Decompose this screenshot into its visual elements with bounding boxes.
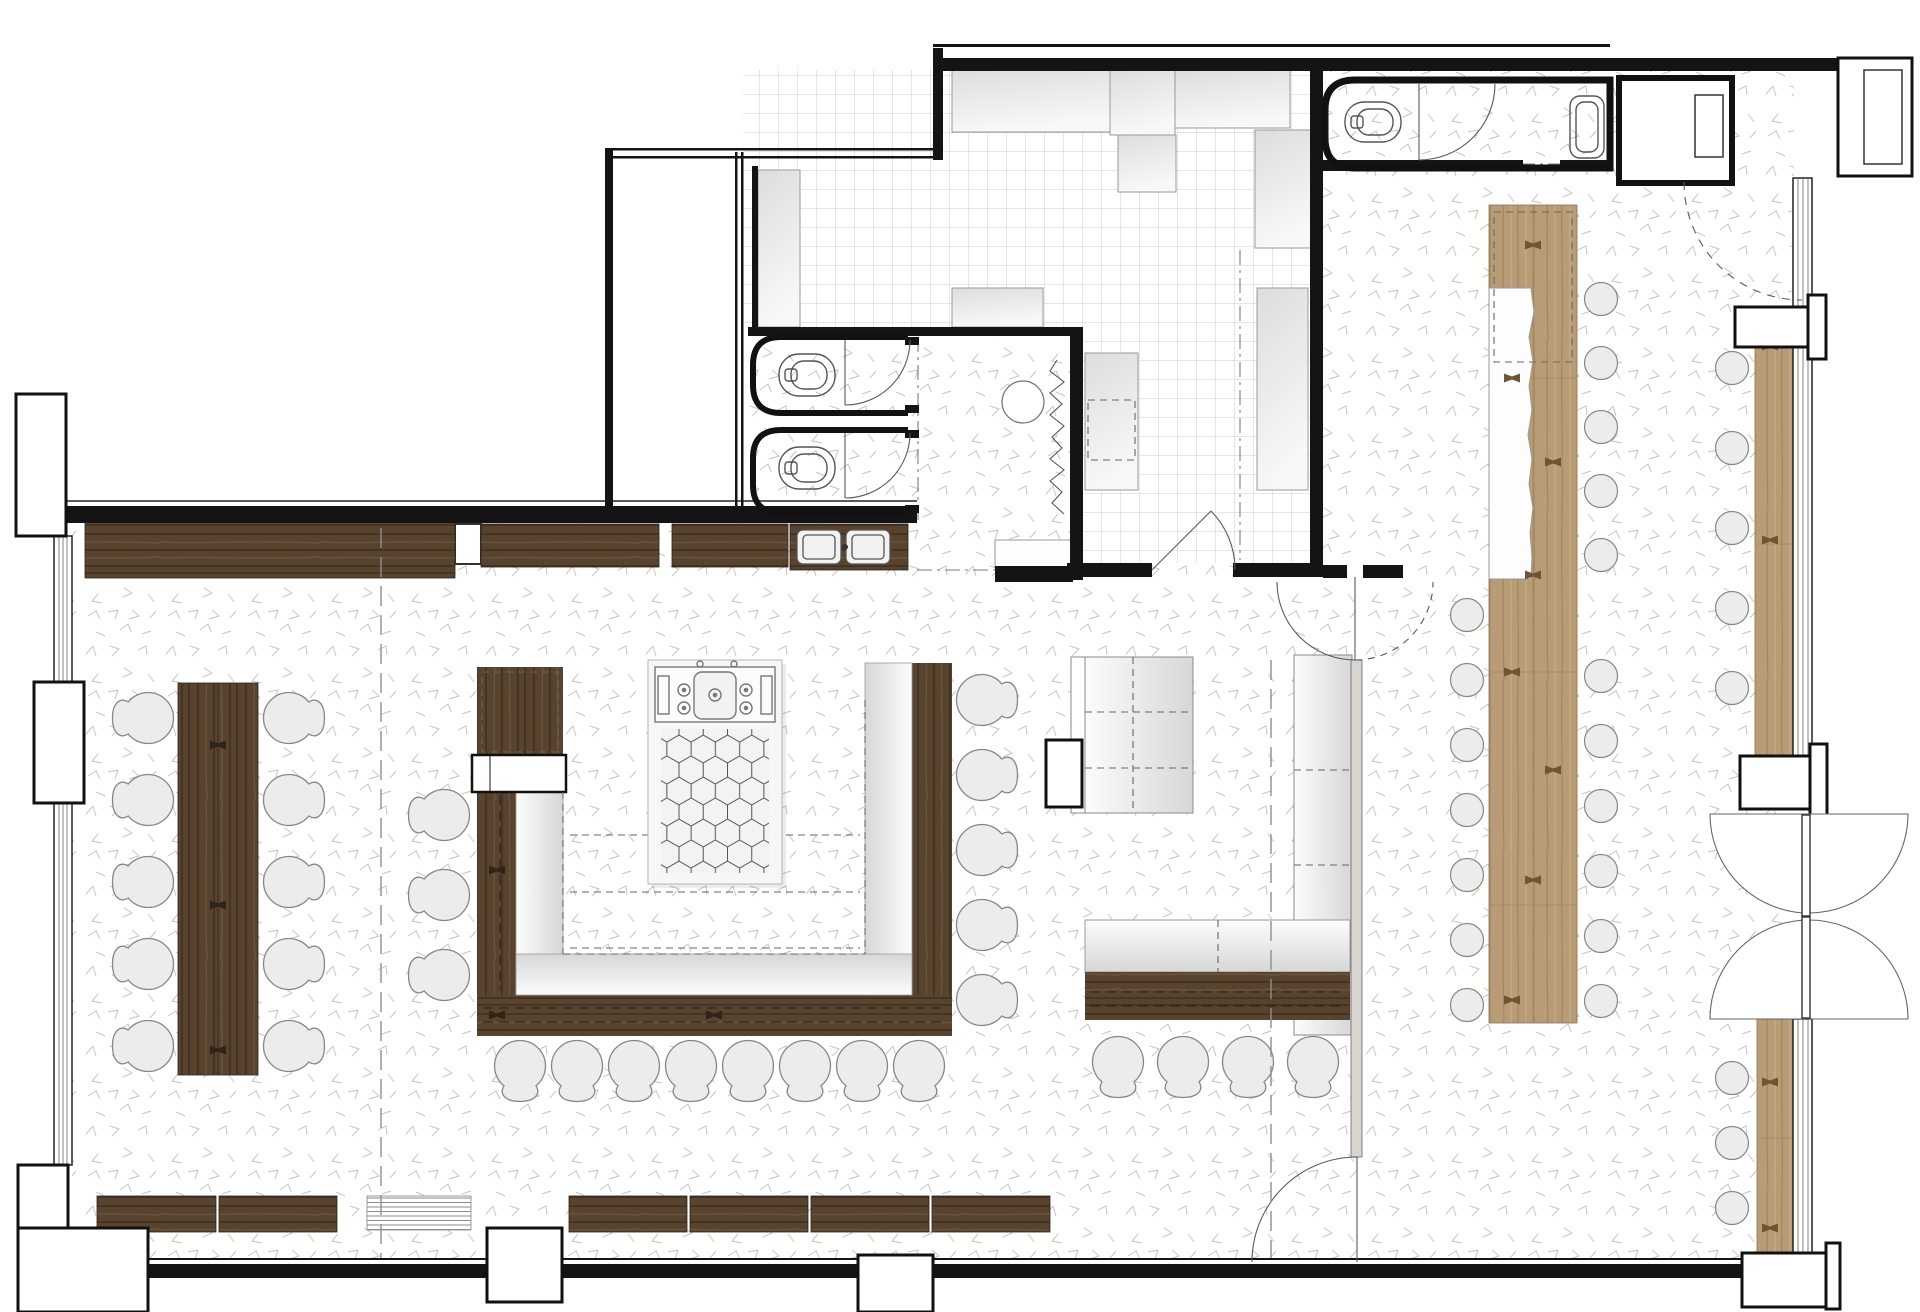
stool-window-bench-upper	[1716, 512, 1749, 545]
stool-window-bench-upper	[1716, 352, 1749, 385]
pass-shelf	[995, 540, 1073, 568]
stool-bar-west	[1451, 859, 1484, 892]
chair-left-table-east	[264, 1021, 325, 1072]
southeast-corner-pier	[1826, 1243, 1840, 1309]
u-cushion-east	[865, 663, 912, 995]
grill-appliance	[655, 661, 775, 722]
counter	[1257, 288, 1308, 490]
service-cabinet	[455, 524, 481, 564]
chair-u-booth-south	[609, 1041, 660, 1102]
stool-window-bench-lower	[1716, 1062, 1749, 1095]
chair-u-booth-west	[409, 950, 470, 1001]
entrance-mat	[367, 1196, 471, 1230]
stool-bar-west	[1451, 989, 1484, 1022]
lounge-bench-wood	[1085, 972, 1350, 1020]
communal-table	[178, 683, 258, 1075]
south-wall-benches	[97, 1196, 1050, 1232]
chair-u-booth-south	[666, 1041, 717, 1102]
chair-u-booth-east	[957, 675, 1018, 726]
stool-bar-east	[1585, 790, 1618, 823]
stool-window-bench-upper	[1716, 592, 1749, 625]
stool-bar-west	[1451, 794, 1484, 827]
chair-lounge-bench-south	[1288, 1037, 1339, 1098]
stool-window-bench-lower	[1716, 1127, 1749, 1160]
stool-bar-east	[1585, 347, 1618, 380]
chair-left-table-west	[113, 939, 174, 990]
stool-bar-east	[1585, 725, 1618, 758]
chair-u-booth-west	[409, 870, 470, 921]
east-pier-cap	[1810, 744, 1827, 821]
wall-bench	[690, 1196, 808, 1232]
stool-bar-east	[1585, 283, 1618, 316]
floor-plan-canvas	[0, 0, 1920, 1312]
counter	[1085, 353, 1138, 490]
southeast-corner-pier	[1742, 1253, 1826, 1307]
floor-plan-page	[0, 0, 1920, 1312]
chair-u-booth-south	[495, 1041, 546, 1102]
chair-left-table-east	[264, 939, 325, 990]
southwest-corner-pier	[18, 1228, 148, 1312]
accessible-wc-floor	[1325, 80, 1610, 168]
faucet-dot	[842, 544, 848, 550]
wall-bench	[219, 1196, 337, 1232]
stool-bar-west	[1451, 599, 1484, 632]
wall-bench	[569, 1196, 687, 1232]
hall-prep-wall	[1070, 335, 1083, 580]
stool-bar-east	[1585, 475, 1618, 508]
sofa-a-seat	[1085, 657, 1193, 813]
step-wall	[605, 150, 613, 510]
side-table	[1046, 740, 1082, 807]
north-wall	[933, 58, 1838, 71]
chair-u-booth-east	[957, 900, 1018, 951]
west-pillar	[16, 394, 66, 536]
stool-bar-east	[1585, 985, 1618, 1018]
counter	[1110, 70, 1175, 135]
grill-island	[648, 660, 786, 888]
chair-u-booth-south	[723, 1041, 774, 1102]
chair-u-booth-south	[894, 1041, 945, 1102]
u-booth-arm-west	[477, 667, 516, 1036]
lounge-partition	[1351, 660, 1362, 1157]
chair-u-booth-east	[957, 825, 1018, 876]
stool-bar-west	[1451, 729, 1484, 762]
counter	[1175, 70, 1290, 128]
south-pier	[487, 1228, 562, 1302]
chair-left-table-west	[113, 693, 174, 744]
u-service-box	[472, 755, 566, 792]
round-table	[1002, 381, 1044, 423]
wc-stalls-floor	[750, 334, 920, 516]
bar-top-inset	[1489, 288, 1534, 579]
chair-u-booth-south	[780, 1041, 831, 1102]
wall-bench	[811, 1196, 929, 1232]
counter	[758, 170, 800, 327]
west-window	[54, 536, 72, 1165]
stool-bar-west	[1451, 664, 1484, 697]
top-bench-segment	[481, 524, 659, 567]
stool-window-bench-lower	[1716, 1192, 1749, 1225]
stool-bar-east	[1585, 411, 1618, 444]
east-pier-cap	[1808, 295, 1826, 359]
store-shelf	[1695, 95, 1723, 157]
stool-bar-east	[1585, 855, 1618, 888]
chair-left-table-west	[113, 1021, 174, 1072]
stool-bar-east	[1585, 539, 1618, 572]
counter	[952, 70, 1110, 132]
stool-bar-west	[1451, 924, 1484, 957]
west-pillar	[34, 682, 84, 803]
counter	[1255, 130, 1312, 248]
chair-left-table-east	[264, 693, 325, 744]
south-pier	[858, 1255, 933, 1312]
chair-left-table-west	[113, 857, 174, 908]
top-bench-segment	[672, 524, 788, 567]
counter	[952, 288, 1043, 327]
chair-u-booth-west	[409, 790, 470, 841]
stool-window-bench-upper	[1716, 672, 1749, 705]
chair-lounge-bench-south	[1158, 1037, 1209, 1098]
chair-u-booth-east	[957, 975, 1018, 1026]
chair-u-booth-south	[552, 1041, 603, 1102]
top-bench-segment	[85, 522, 455, 578]
chair-left-table-east	[264, 857, 325, 908]
honeycomb-hearth	[661, 729, 769, 873]
stool-bar-east	[1585, 660, 1618, 693]
chair-left-table-east	[264, 775, 325, 826]
kitchen-east-wall	[1310, 70, 1323, 565]
stool-bar-east	[1585, 920, 1618, 953]
wall-bench	[932, 1196, 1050, 1232]
service-hall-floor	[912, 330, 1073, 570]
chair-u-booth-south	[837, 1041, 888, 1102]
chair-lounge-bench-south	[1093, 1037, 1144, 1098]
chair-left-table-west	[113, 775, 174, 826]
chair-lounge-bench-south	[1223, 1037, 1274, 1098]
chair-u-booth-east	[957, 750, 1018, 801]
counter	[1118, 135, 1176, 192]
u-booth-arm-east	[912, 663, 952, 1036]
stool-window-bench-upper	[1716, 432, 1749, 465]
u-cushion-south	[516, 954, 912, 995]
